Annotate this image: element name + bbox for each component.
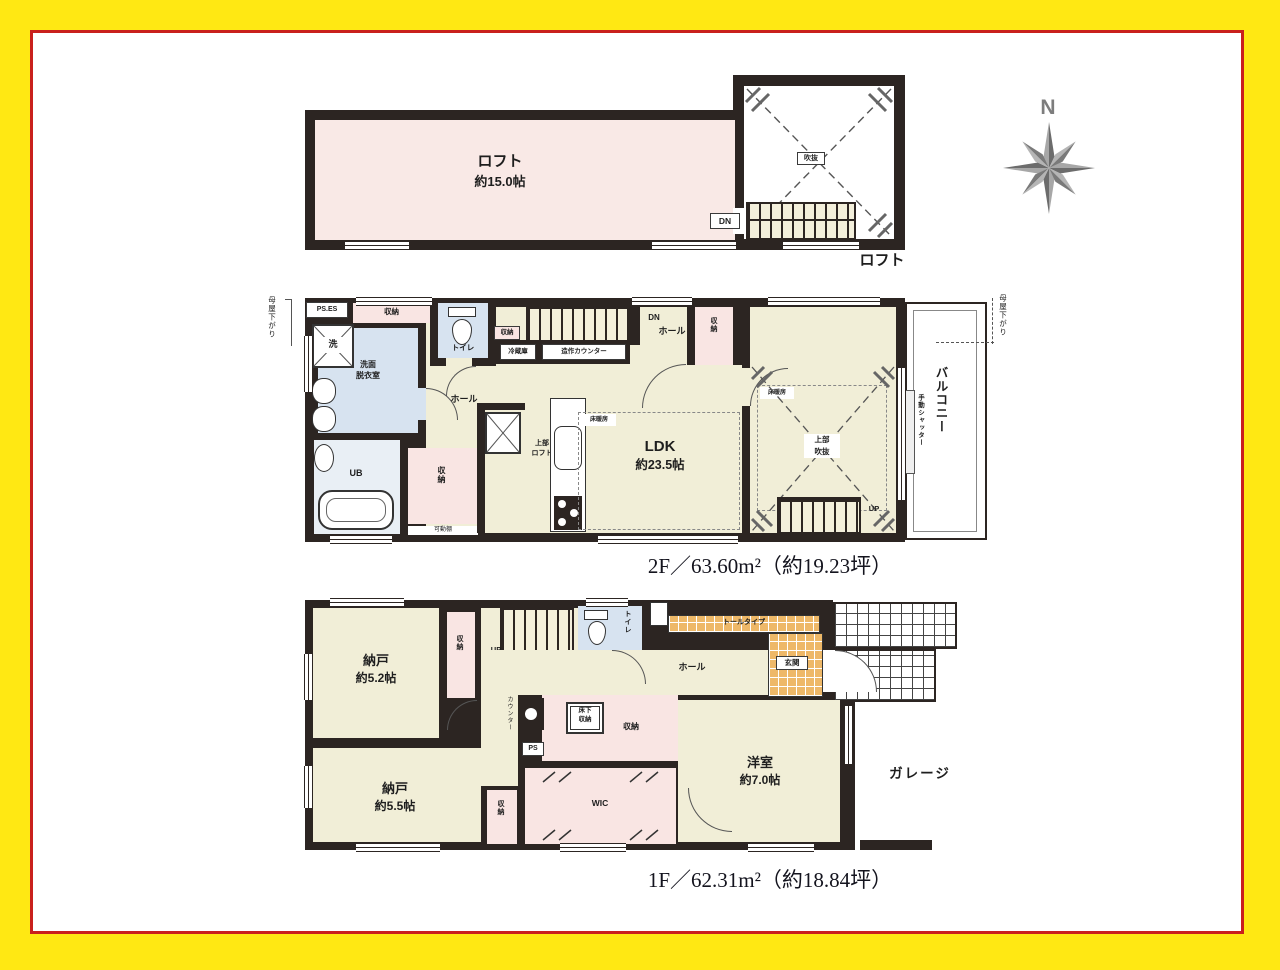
f2-bed-stairs: [777, 500, 861, 534]
window: [345, 241, 409, 250]
f1-western-label2: 約7.0帖: [714, 774, 806, 788]
f1-storage52-label1: 納戸: [338, 654, 414, 669]
loft-floor-tag: ロフト: [852, 252, 912, 269]
f2-closet-hall-wall-l: [687, 307, 695, 365]
f2-closet-hall-label: 収納: [710, 317, 717, 357]
f1-storage52-label2: 約5.2帖: [330, 672, 422, 686]
window: [768, 297, 880, 306]
window: [356, 297, 432, 306]
window: [304, 766, 313, 808]
f2-toilet-door-opening: [446, 358, 472, 366]
window: [897, 368, 906, 500]
f2-toilet-wall-l: [430, 303, 438, 358]
f2-loft-hatch-cross: [485, 412, 521, 454]
f2-toilet-label: トイレ: [438, 344, 488, 353]
window: [330, 535, 392, 544]
window: [598, 535, 738, 544]
f2-roof-slope-right: 母屋下がり: [999, 294, 1007, 360]
window: [783, 241, 859, 250]
f1-closet-c-label: 収納: [497, 800, 504, 836]
f2-bathtub-inner: [326, 498, 386, 522]
f2-caption: 2F／63.60m²（約19.23坪）: [560, 550, 980, 580]
f2-roof-slope-right-line: [992, 298, 994, 344]
f2-shelf-label: 可動棚: [408, 527, 478, 534]
f2-bath-label: UB: [336, 468, 376, 478]
loft-room-size: 約15.0帖: [360, 175, 640, 190]
window: [330, 598, 404, 607]
window: [632, 297, 692, 306]
f2-void-above-label2: 吹抜: [804, 446, 840, 458]
f1-garage-wall-stub: [860, 840, 932, 850]
f2-basin: [312, 406, 336, 432]
f2-stairs: [526, 307, 630, 343]
f1-counter-label: カウンター: [506, 696, 512, 742]
f2-roof-slope-left-line: [291, 300, 292, 346]
f1-small-fixture-box: [650, 602, 668, 626]
f2-counter-label: 造作カウンター: [542, 344, 626, 360]
window: [748, 843, 814, 852]
f2-ldk-label1: LDK: [614, 438, 706, 455]
f2-wall-seg: [477, 403, 485, 533]
f1-storage55-label1: 納戸: [357, 782, 433, 797]
f2-wall-seg: [477, 403, 525, 410]
f2-roof-slope-right-tick: [936, 342, 994, 344]
floor-plan-canvas: 吹抜 ロフト 約15.0帖 DN ロフト N 手動シャッター バルコニー 母屋下…: [0, 0, 1280, 970]
stove-burner: [558, 518, 566, 526]
f1-corridor: [481, 694, 518, 786]
window: [304, 654, 313, 700]
f1-toilet-label: トイレ: [624, 610, 631, 650]
f1-closet-b-label: 収納: [606, 722, 656, 731]
f2-closet-top-label: 収納: [353, 308, 430, 317]
f1-garage-label: ガレージ: [878, 766, 962, 782]
f2-basin: [312, 378, 336, 404]
f1-ps-label: PS: [522, 742, 544, 756]
f2-roof-slope-left: 母屋下がり: [268, 296, 276, 362]
f1-underfloor-label1: 床下: [566, 707, 604, 714]
window: [586, 598, 628, 607]
loft-void-label: 吹抜: [797, 152, 825, 165]
f1-stairs: [500, 608, 574, 652]
f1-underfloor-label2: 収納: [566, 716, 604, 723]
f1-western-label1: 洋室: [722, 756, 798, 771]
window: [356, 843, 440, 852]
f2-roof-slope-left-tick: [285, 299, 292, 300]
f2-void-above-label1: 上部: [804, 434, 840, 446]
loft-stairs: [746, 202, 856, 240]
f2-floor-heating-ldk-label: 床暖房: [582, 414, 616, 426]
f2-up-label: UP: [860, 505, 888, 514]
loft-stairs-divider: [746, 219, 856, 221]
f1-porch-tiles: [833, 602, 957, 649]
f2-washroom-label2: 脱衣室: [333, 371, 403, 380]
f2-washer-label: 洗: [323, 337, 343, 353]
f2-stairs-wall-r: [630, 303, 640, 345]
window: [652, 241, 736, 250]
f2-washroom-label1: 洗面: [333, 360, 403, 369]
f2-toilet-tank: [448, 307, 476, 317]
f2-shutter-label: 手動シャッター: [916, 394, 923, 480]
window: [304, 336, 313, 392]
f2-balcony-label: バルコニー: [934, 366, 947, 486]
f2-washroom-door-opening: [418, 388, 426, 420]
f1-wic-hanger-marks: [525, 768, 676, 844]
f2-closet-hall-wall-r: [733, 307, 742, 365]
compass-rose-icon: [1003, 120, 1095, 216]
f2-fridge-label: 冷蔵庫: [500, 344, 536, 360]
loft-room-name: ロフト: [360, 153, 640, 170]
f1-washbasin-bowl: [525, 708, 537, 720]
f2-closet-small: 収納: [494, 326, 520, 340]
f2-dn-label: DN: [640, 313, 668, 322]
f2-ps-es-label: PS.ES: [306, 302, 348, 318]
f1-entrance-label: 玄関: [776, 656, 808, 670]
f2-bath-fixture: [314, 444, 334, 472]
f1-storage55-label2: 約5.5帖: [349, 800, 441, 814]
f2-shutter-box: [905, 390, 915, 474]
stove-burner: [558, 500, 566, 508]
f1-caption: 1F／62.31m²（約18.84坪）: [560, 864, 980, 894]
window: [844, 706, 853, 764]
f1-hall-label: ホール: [664, 662, 720, 672]
f1-shoe-cabinet-label: トールタイプ: [668, 619, 820, 627]
f1-washbasin: [518, 698, 544, 730]
f1-closet-a-label: 収納: [456, 635, 463, 675]
f2-ldk-label2: 約23.5帖: [610, 458, 710, 472]
f1-toilet-tank: [584, 610, 608, 620]
window: [560, 843, 626, 852]
f2-bedroom-door-opening: [742, 368, 750, 406]
stove-burner: [570, 509, 578, 517]
compass-north-label: N: [1023, 96, 1073, 120]
f2-bedroom-wall: [742, 307, 750, 533]
loft-dn-label: DN: [710, 213, 740, 229]
f1-entrance-opening: [823, 650, 835, 692]
f2-closet-mid-label: 収納: [437, 466, 445, 506]
